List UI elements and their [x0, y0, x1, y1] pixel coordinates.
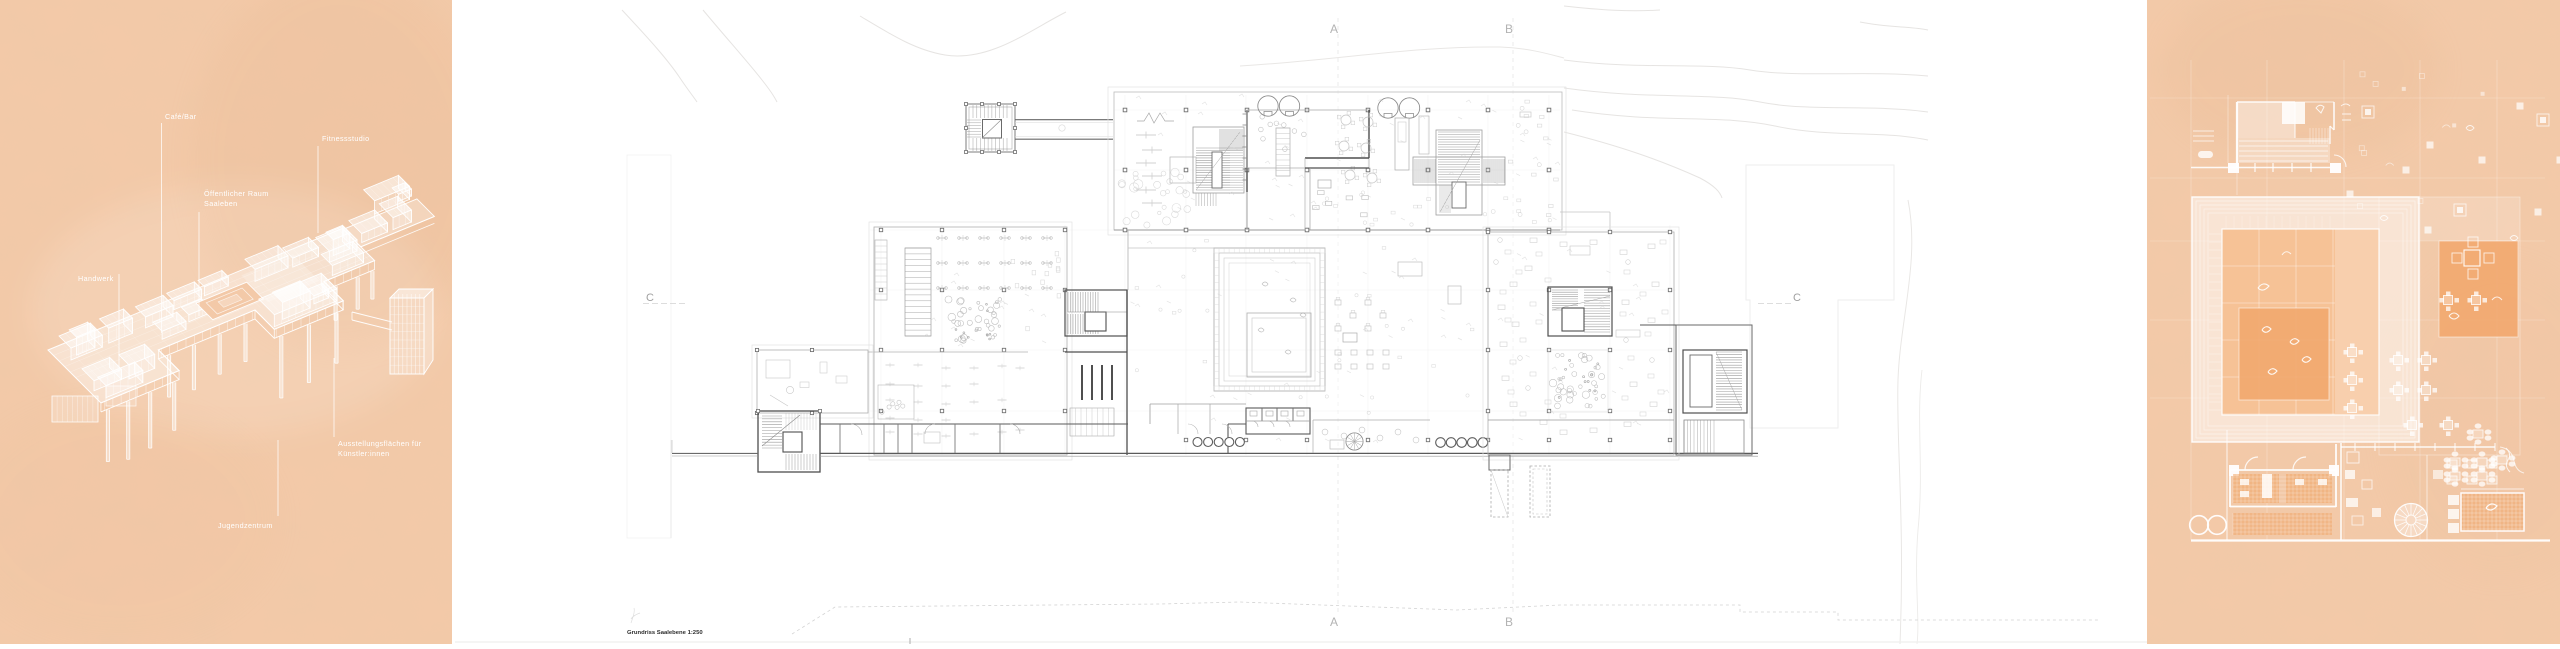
svg-text:A: A: [1330, 22, 1338, 36]
svg-text:C: C: [1793, 292, 1801, 304]
svg-text:Handwerk: Handwerk: [78, 274, 114, 283]
svg-text:Ausstellungsflächen für: Ausstellungsflächen für: [338, 439, 422, 448]
svg-text:C: C: [646, 292, 654, 304]
svg-text:Fitnessstudio: Fitnessstudio: [322, 134, 370, 143]
svg-text:Öffentlicher Raum: Öffentlicher Raum: [204, 189, 269, 198]
svg-text:Grundriss Saalebene 1:250: Grundriss Saalebene 1:250: [627, 630, 703, 636]
svg-text:B: B: [1505, 615, 1513, 629]
svg-text:A: A: [1330, 615, 1338, 629]
svg-text:Saaleben: Saaleben: [204, 199, 238, 208]
svg-text:Jugendzentrum: Jugendzentrum: [218, 521, 273, 530]
svg-text:B: B: [1505, 22, 1513, 36]
svg-text:Café/Bar: Café/Bar: [165, 112, 197, 121]
svg-text:Künstler:innen: Künstler:innen: [338, 449, 390, 458]
